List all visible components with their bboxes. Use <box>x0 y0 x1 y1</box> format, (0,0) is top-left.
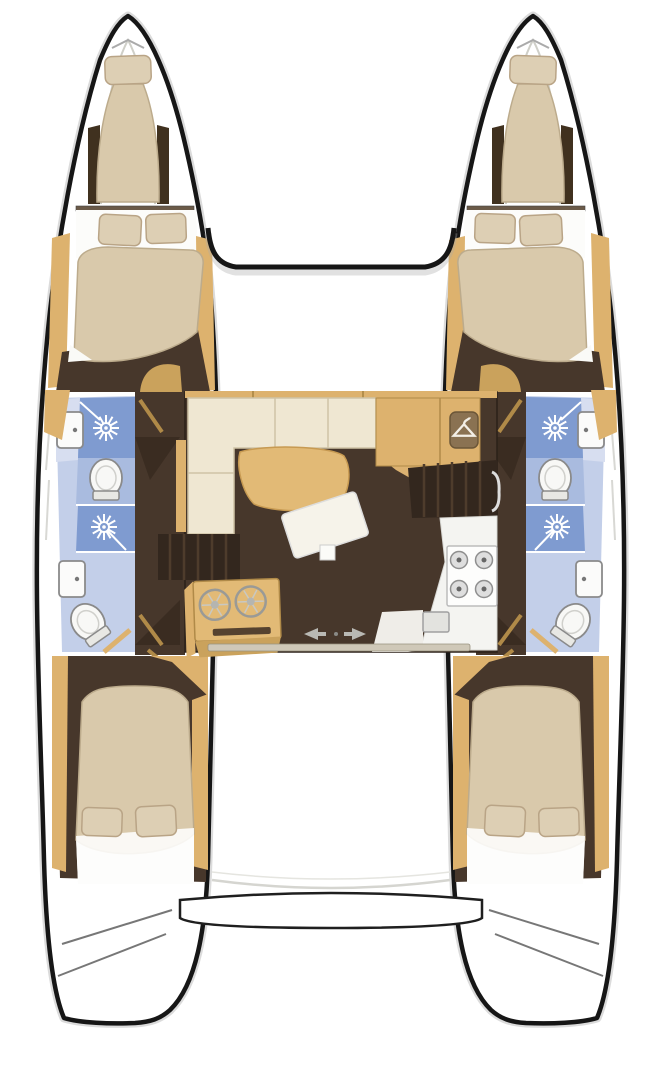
pillow <box>146 213 187 243</box>
pillow <box>135 805 177 837</box>
pillow <box>98 214 142 246</box>
catamaran-floor-plan <box>0 0 661 1080</box>
galley-sink <box>423 612 449 632</box>
stair-wall <box>176 440 186 532</box>
cockpit <box>180 872 482 928</box>
door-track <box>208 644 470 651</box>
wood-shelf-left <box>52 656 68 872</box>
aft-cabin <box>52 656 208 884</box>
wardrobe-cabinet <box>450 412 478 448</box>
table-leg <box>320 545 335 560</box>
saloon <box>158 391 499 658</box>
forward-crossbeam <box>208 228 454 272</box>
steps-to-starboard-hull <box>408 460 499 518</box>
stern-platform <box>180 893 482 928</box>
wood-shelf-right <box>192 694 208 870</box>
pillow <box>82 807 123 836</box>
stove <box>447 546 497 606</box>
floor-plan-drawing <box>0 0 661 1080</box>
front-sill <box>185 391 497 398</box>
pillow <box>105 55 152 85</box>
